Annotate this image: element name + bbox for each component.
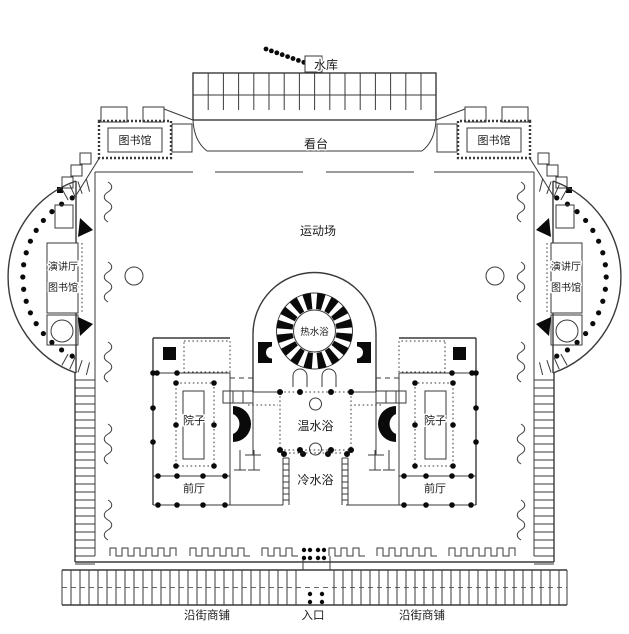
floor-plan-canvas: 水库 看台 运动场 图书馆 图书馆 演讲厅 图书馆 演讲厅 图书馆 热水浴 温水… (0, 0, 629, 634)
fountain-right (486, 267, 504, 285)
bath-wing-left (150, 338, 278, 508)
exedra-right (536, 179, 621, 375)
cold-bath-label: 冷水浴 (297, 473, 333, 487)
hot-bath-label: 热水浴 (300, 326, 329, 338)
library-left-block (57, 107, 193, 197)
exedra-left-label-line2: 图书馆 (48, 281, 78, 294)
crenellated-wall (110, 548, 515, 556)
west-wall-shop-teeth (75, 380, 95, 564)
exedra-right-label-line2: 图书馆 (551, 281, 581, 294)
shops-left-label: 沿街商铺 (184, 608, 230, 622)
exedra-left-label-line1: 演讲厅 (48, 260, 78, 273)
entrance-column-dots (302, 548, 326, 604)
bath-complex-floor-plan: 水库 看台 运动场 图书馆 图书馆 演讲厅 图书馆 演讲厅 图书馆 热水浴 温水… (0, 0, 629, 634)
courtyard-right-label: 院子 (424, 413, 446, 427)
library-right-block (436, 107, 572, 197)
cistern-cells (208, 73, 421, 110)
library-right-label: 图书馆 (478, 133, 511, 147)
aqueduct-dotted-line (264, 47, 307, 65)
sports-field-label: 运动场 (300, 224, 336, 238)
bath-wing-right (351, 338, 479, 508)
fountain-left (125, 267, 143, 285)
courtyard-left-label: 院子 (183, 413, 205, 427)
shops-right-label: 沿街商铺 (399, 608, 445, 622)
library-left-label: 图书馆 (119, 133, 152, 147)
front-hall-left-label: 前厅 (183, 481, 205, 495)
east-wall-shop-teeth (534, 380, 554, 564)
reservoir-label: 水库 (314, 57, 338, 72)
warm-bath-label: 温水浴 (297, 419, 333, 433)
enclosure-walls (75, 373, 554, 564)
front-hall-right-label: 前厅 (424, 481, 446, 495)
exedra-left (8, 179, 93, 375)
entrance-label: 入口 (302, 609, 325, 622)
grandstand-label: 看台 (304, 136, 328, 151)
exedra-right-label-line1: 演讲厅 (551, 260, 581, 273)
